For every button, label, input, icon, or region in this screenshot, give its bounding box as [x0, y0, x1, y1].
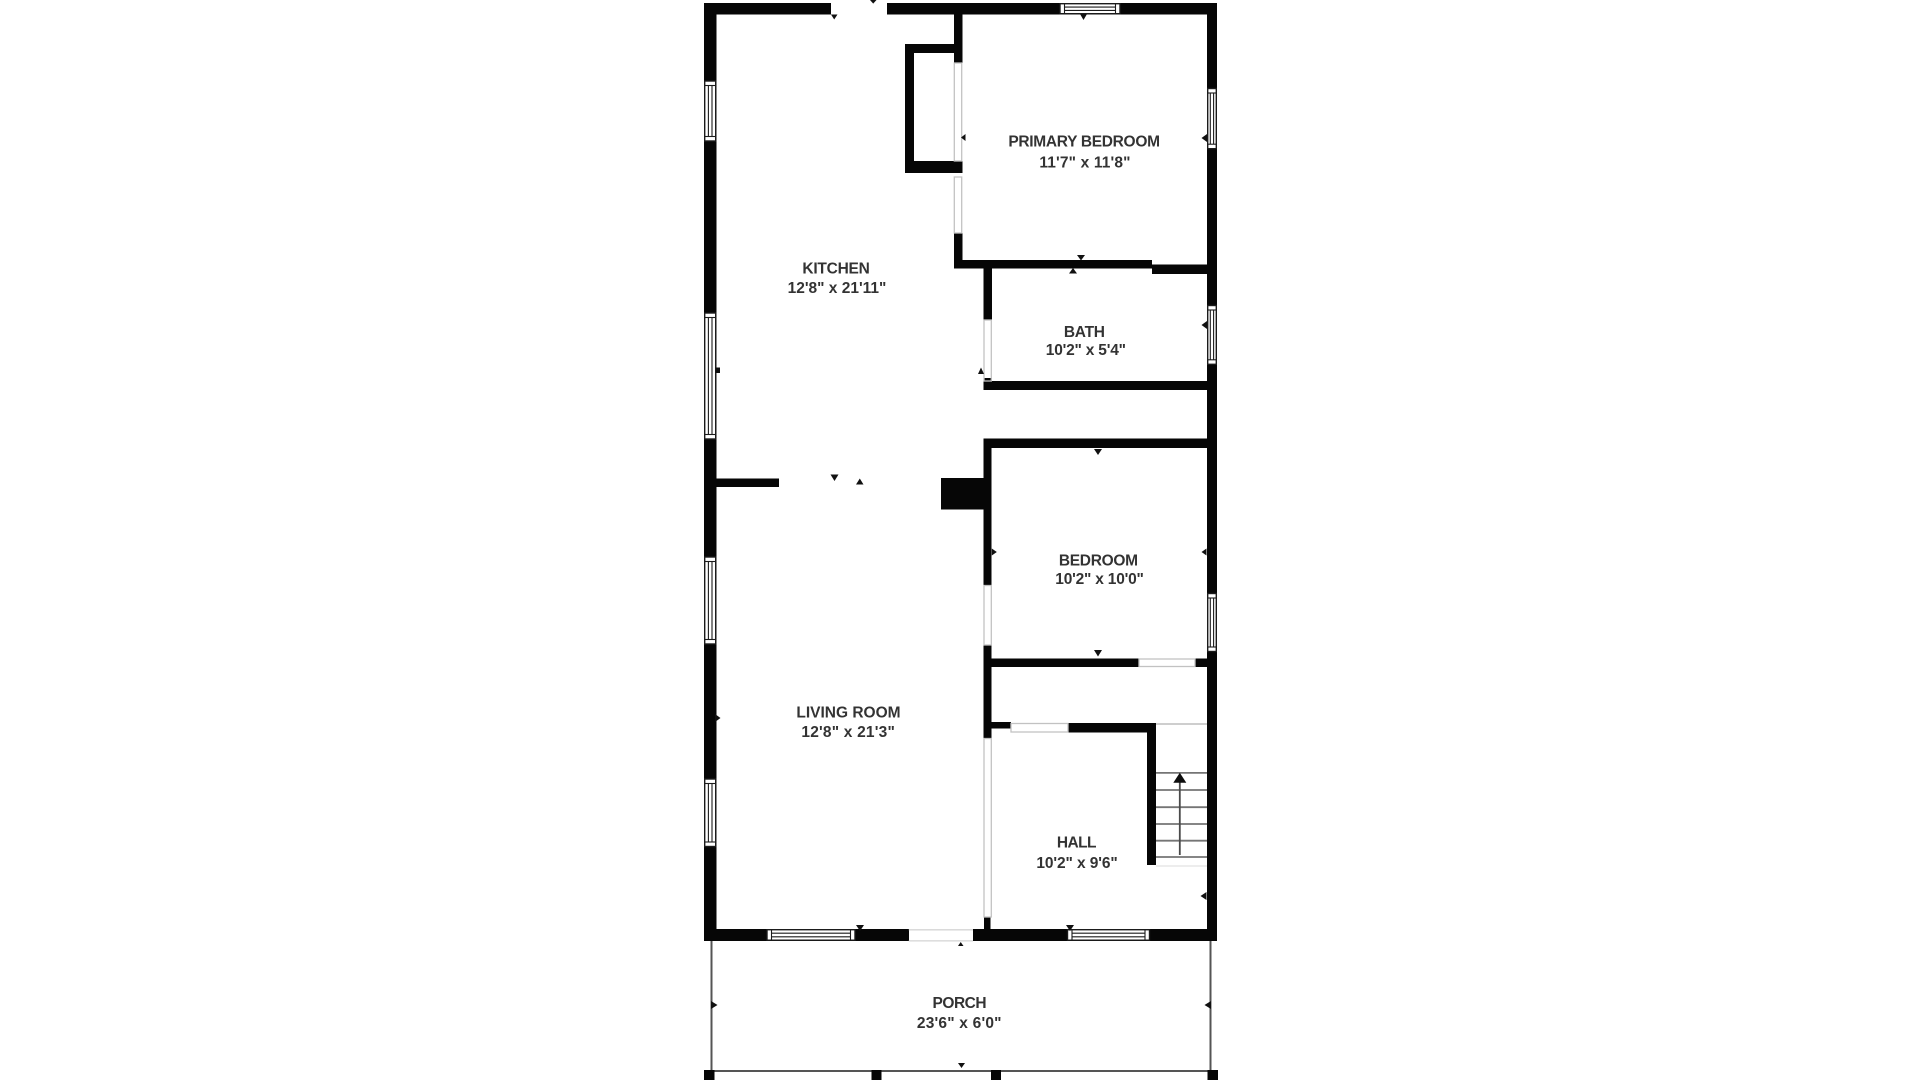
svg-text:12'8" x 21'3": 12'8" x 21'3" [801, 724, 895, 741]
svg-text:12'8" x 21'11": 12'8" x 21'11" [788, 280, 887, 297]
svg-text:PRIMARY BEDROOM: PRIMARY BEDROOM [1008, 134, 1159, 151]
svg-text:11'7" x 11'8": 11'7" x 11'8" [1039, 155, 1130, 172]
svg-text:BATH: BATH [1064, 324, 1105, 341]
svg-text:23'6" x 6'0": 23'6" x 6'0" [917, 1015, 1002, 1032]
svg-text:10'2" x 5'4": 10'2" x 5'4" [1046, 342, 1126, 359]
svg-text:KITCHEN: KITCHEN [802, 261, 869, 278]
svg-text:HALL: HALL [1057, 835, 1096, 852]
svg-text:10'2" x 9'6": 10'2" x 9'6" [1036, 855, 1117, 872]
svg-text:BEDROOM: BEDROOM [1059, 553, 1138, 570]
svg-text:LIVING ROOM: LIVING ROOM [796, 705, 900, 722]
svg-text:PORCH: PORCH [933, 995, 987, 1012]
svg-text:10'2" x 10'0": 10'2" x 10'0" [1055, 571, 1143, 588]
